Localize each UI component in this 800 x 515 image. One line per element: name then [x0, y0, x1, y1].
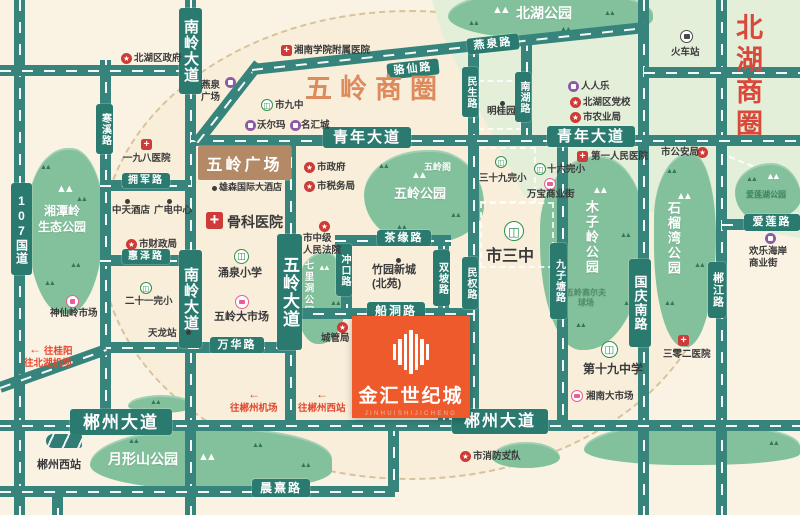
- school-book-icon: ◫: [140, 282, 152, 294]
- poi-label: 骨科医院: [227, 214, 283, 232]
- poi-label: 天龙站: [148, 328, 177, 340]
- tree-cluster-icon: ▲▲: [150, 399, 160, 406]
- poi-label: 市公安局: [661, 147, 699, 159]
- hospital-cross-icon: +: [281, 45, 292, 56]
- road-label: 五岭大道: [277, 234, 302, 350]
- project-block: 金汇世纪城JINHUISHIJICHENG: [352, 316, 470, 418]
- road-chenxi: [0, 486, 395, 497]
- tree-icon: ▲▲: [766, 172, 778, 181]
- government-star-icon: ★: [126, 239, 137, 250]
- direction-label: 往郴州西站: [298, 400, 346, 414]
- road-label: 青年大道: [547, 126, 635, 147]
- road-label: 郴州大道: [70, 409, 172, 435]
- school-book-icon: ◫: [261, 99, 273, 111]
- road-centerline: [393, 425, 395, 492]
- tree-cluster-icon: ▲▲: [128, 438, 138, 445]
- hospital-cross-icon: +: [577, 151, 588, 162]
- school-book-icon: ◫: [504, 221, 524, 241]
- market-cart-icon: [571, 390, 583, 402]
- tree-icon: ▲▲: [318, 264, 328, 272]
- park-sublabel: 五岭高尔夫 球场: [566, 288, 606, 309]
- poi-label: 涌泉小学: [218, 267, 262, 281]
- direction-label: 往郴州机场: [230, 400, 278, 414]
- poi-label: 湘南学院附属医院: [294, 45, 370, 57]
- government-star-icon: ★: [337, 322, 348, 333]
- road-centerline: [644, 72, 800, 74]
- road-label: 惠泽路: [122, 249, 170, 264]
- park-label: 月形山公园: [108, 450, 178, 468]
- poi-label: 市政府: [317, 162, 346, 174]
- poi-label: 三十九完小: [479, 173, 527, 185]
- road-label: 青年大道: [323, 127, 411, 148]
- poi-label: 第十九中学: [583, 362, 643, 377]
- road-label: 107国道: [11, 183, 32, 275]
- road-station-east: [644, 67, 800, 78]
- poi-label: 市税务局: [317, 181, 355, 193]
- school-book-icon: ◫: [534, 163, 546, 175]
- road-label: 南岭大道: [179, 8, 202, 94]
- mall-bag-icon: [245, 120, 256, 131]
- place-dot-icon: [125, 199, 130, 204]
- road-label: 晨熹路: [252, 479, 310, 497]
- road-south-stub-1: [388, 425, 399, 492]
- poi-label: 人人乐: [581, 81, 610, 93]
- road-label: 民权路: [462, 257, 478, 309]
- project-pinyin: JINHUISHIJICHENG: [365, 411, 457, 417]
- tree-cluster-icon: ▲▲: [44, 280, 54, 287]
- government-star-icon: ★: [460, 451, 471, 462]
- tree-cluster-icon: ▲▲: [40, 164, 50, 171]
- hospital-cross-icon: +: [206, 212, 223, 229]
- poi-label: 二十一完小: [125, 296, 173, 308]
- government-star-icon: ★: [304, 162, 315, 173]
- road-label: 郴江路: [708, 262, 726, 318]
- park-label: 五岭公园: [394, 186, 446, 203]
- poi-label: 北湖区党校: [583, 97, 631, 109]
- poi-label: 燕泉 广场: [201, 80, 220, 104]
- poi-label: 广电中心: [154, 205, 192, 217]
- park-label: 石榴湾公园: [664, 201, 681, 276]
- poi-label: 雄森国际大酒店: [219, 182, 282, 193]
- school-book-icon: ◫: [495, 156, 507, 168]
- school-book-icon: ◫: [234, 249, 249, 264]
- zone-title: 五岭商圈: [305, 76, 445, 103]
- tree-cluster-icon: ▲▲: [575, 322, 585, 329]
- park-label: 爱莲湖公园: [746, 190, 786, 200]
- poi-label: 市九中: [275, 100, 304, 112]
- tree-cluster-icon: ▲▲: [330, 300, 340, 307]
- government-star-icon: ★: [570, 112, 581, 123]
- tree-icon: ▲▲: [592, 186, 606, 196]
- market-cart-icon: [66, 295, 79, 308]
- poi-label: 火车站: [671, 47, 700, 59]
- road-label: 寒溪路: [96, 104, 113, 154]
- poi-label: 欢乐海岸 商业街: [749, 246, 787, 270]
- tree-cluster-icon: ▲▲: [300, 462, 310, 469]
- place-dot-icon: [212, 186, 217, 191]
- wuling-plaza-box: 五岭广场: [198, 146, 291, 180]
- poi-label: 竹园新城 (北苑): [372, 264, 416, 292]
- park-label: 湘潭岭 生态公园: [38, 204, 86, 235]
- road-centerline: [0, 70, 191, 72]
- direction-arrow-icon: ←: [29, 342, 41, 356]
- project-logo-icon: [393, 328, 430, 376]
- tree-icon: ▲▲: [198, 452, 214, 463]
- tree-cluster-icon: ▲▲: [664, 300, 674, 307]
- road-qingnian-dadao: [191, 135, 800, 146]
- tree-icon: ▲▲: [411, 171, 425, 181]
- road-label: 九子塘路: [550, 243, 567, 319]
- direction-arrow-icon: ←: [316, 387, 328, 401]
- tree-cluster-icon: ▲▲: [768, 440, 778, 447]
- place-dot-icon: [186, 330, 191, 335]
- tree-cluster-icon: ▲▲: [694, 262, 704, 269]
- tree-cluster-icon: ▲▲: [70, 262, 80, 269]
- zone-title: 北湖商圈: [733, 13, 760, 141]
- poi-label: 明桂园: [487, 106, 516, 118]
- poi-label: 市财政局: [139, 239, 177, 251]
- market-cart-icon: [235, 295, 249, 309]
- poi-label: 市三中: [486, 247, 534, 267]
- poi-label: 神仙岭市场: [50, 308, 98, 320]
- train-station-icon: [680, 30, 693, 43]
- mall-bag-icon: [225, 77, 236, 88]
- government-star-icon: ★: [121, 53, 132, 64]
- poi-label: 北湖区政府: [134, 53, 182, 65]
- tree-cluster-icon: ▲▲: [746, 176, 756, 183]
- road-label: 爱莲路: [744, 214, 800, 231]
- poi-label: 湘南大市场: [586, 391, 634, 403]
- map-canvas: ▲▲▲▲▲▲▲▲北湖公园▲▲▲▲▲▲▲▲▲▲湘潭岭 生态公园▲▲▲▲▲▲▲▲五岭…: [0, 0, 800, 515]
- tree-cluster-icon: ▲▲: [666, 168, 676, 175]
- road-label: 万华路: [210, 337, 264, 353]
- hospital-cross-icon: +: [678, 335, 689, 346]
- bullet-train-icon: [46, 434, 82, 448]
- tree-icon: ▲▲: [56, 184, 72, 195]
- poi-label: 三零二医院: [663, 349, 711, 361]
- poi-label: 名汇城: [301, 120, 330, 132]
- poi-label: 万宝商业街: [527, 189, 575, 201]
- place-dot-icon: [396, 258, 401, 263]
- road-centerline: [191, 140, 800, 142]
- hospital-cross-icon: +: [141, 139, 152, 150]
- road-label: 南湖路: [515, 72, 531, 122]
- direction-arrow-icon: ←: [248, 387, 260, 401]
- tree-cluster-icon: ▲▲: [620, 232, 630, 239]
- government-star-icon: ★: [304, 181, 315, 192]
- tree-icon: ▲▲: [492, 5, 508, 16]
- park-label: 木子岭公园: [582, 200, 599, 275]
- poi-label: 沃尔玛: [257, 120, 286, 132]
- park-sublabel: 五岭阁: [424, 162, 451, 174]
- poi-label: 中天酒店: [112, 205, 150, 217]
- road-label: 茶缘路: [377, 230, 431, 246]
- poi-label: 十六完小: [547, 164, 585, 176]
- poi-label: 市农业局: [583, 112, 621, 124]
- poi-label: 城管局: [321, 333, 350, 345]
- poi-label: 五岭大市场: [214, 311, 269, 325]
- poi-label: 第一人民医院: [591, 151, 648, 163]
- road-topleft: [0, 65, 191, 76]
- poi-label: 郴州西站: [37, 459, 81, 473]
- tree-cluster-icon: ▲▲: [252, 442, 262, 449]
- mall-bag-icon: [568, 81, 579, 92]
- road-label: 国庆南路: [629, 259, 651, 347]
- place-dot-icon: [167, 199, 172, 204]
- project-name: 金汇世纪城: [358, 381, 463, 408]
- poi-label: 市中级 人民法院: [303, 233, 341, 257]
- mall-bag-icon: [765, 233, 776, 244]
- road-label: 拥军路: [122, 173, 170, 188]
- government-star-icon: ★: [319, 221, 330, 232]
- mall-bag-icon: [290, 120, 301, 131]
- government-star-icon: ★: [570, 97, 581, 108]
- road-label: 双坡路: [433, 250, 450, 306]
- direction-label: 往北湖机场: [24, 355, 72, 369]
- poi-label: 市消防支队: [473, 451, 521, 463]
- road-label: 民生路: [462, 67, 478, 117]
- tree-cluster-icon: ▲▲: [450, 212, 460, 219]
- tree-cluster-icon: ▲▲: [468, 20, 478, 27]
- tree-cluster-icon: ▲▲: [604, 10, 614, 17]
- school-book-icon: ◫: [601, 341, 618, 358]
- park-label: 北湖公园: [516, 4, 572, 22]
- poi-label: 一九八医院: [123, 153, 171, 165]
- tree-cluster-icon: ▲▲: [378, 163, 388, 170]
- road-centerline: [0, 491, 395, 493]
- tree-cluster-icon: ▲▲: [76, 196, 86, 203]
